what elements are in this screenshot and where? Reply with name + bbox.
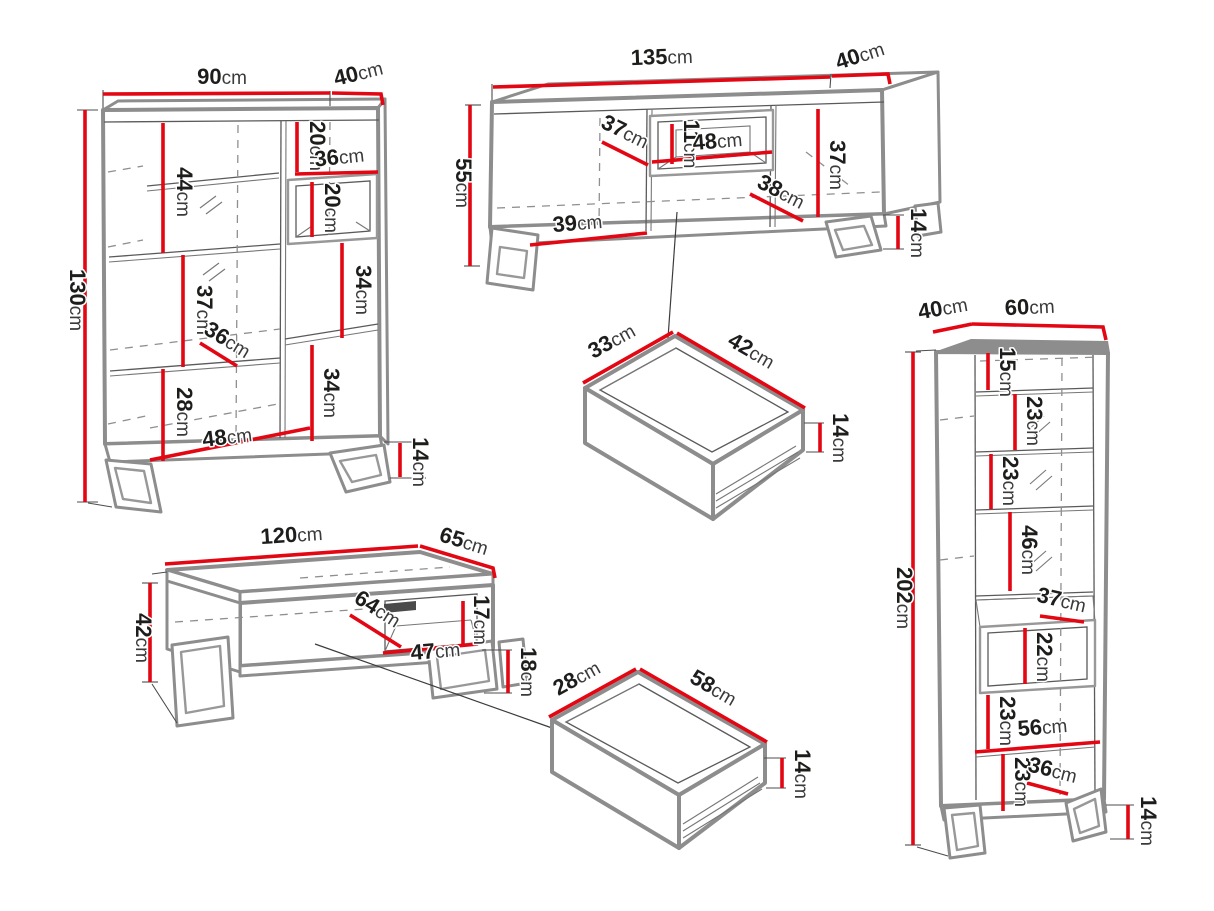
dim-coffee-table-leg-height: 18cm xyxy=(516,647,541,697)
dim-tall-cabinet-top-section: 15cm xyxy=(995,347,1020,397)
dim-highboard-height: 130cm xyxy=(65,269,90,331)
dim-tv-stand-depth: 40cm xyxy=(832,35,887,74)
dim-tv-stand-width: 135cm xyxy=(630,43,693,70)
dim-tall-cabinet-width: 60cm xyxy=(1004,293,1055,321)
dim-highboard-leg-height: 14cm xyxy=(408,437,433,487)
dim-tall-cabinet-section-4: 46cm xyxy=(1017,525,1042,575)
dim-table-drawer-height: 14cm xyxy=(790,749,815,799)
dim-tv-stand-right-inner-height: 37cm xyxy=(825,140,850,190)
dim-tv-stand-height: 55cm xyxy=(451,158,476,208)
dim-highboard-lower-section: 28cm xyxy=(172,387,197,437)
diagram-canvas: 90cm 40cm 130cm 44cm 20cm 36cm 20cm 34cm… xyxy=(0,0,1214,911)
dim-highboard-right-upper: 34cm xyxy=(351,265,376,315)
dim-coffee-table-width: 120cm xyxy=(260,520,324,549)
dim-tv-drawer-height: 14cm xyxy=(828,413,853,463)
dim-highboard-upper-shelf: 44cm xyxy=(172,167,197,217)
coffee-table-drawing xyxy=(167,552,552,728)
dim-tall-cabinet-depth: 40cm xyxy=(916,291,969,324)
tv-stand-drawing xyxy=(487,72,941,338)
dim-tall-cabinet-leg-height: 14cm xyxy=(1136,796,1161,846)
dim-tall-cabinet-section-2: 23cm xyxy=(1022,396,1047,446)
dim-tall-cabinet-section-3: 23cm xyxy=(998,456,1023,506)
dim-highboard-depth: 40cm xyxy=(331,55,385,91)
dim-coffee-table-niche-height: 17cm xyxy=(469,595,494,645)
dim-coffee-table-height: 42cm xyxy=(131,613,156,663)
dim-highboard-right-lower: 34cm xyxy=(319,368,344,418)
dim-tall-cabinet-niche-height: 22cm xyxy=(1032,632,1057,682)
furniture-dimensions-diagram: 90cm 40cm 130cm 44cm 20cm 36cm 20cm 34cm… xyxy=(0,0,1214,911)
dim-highboard-niche-height: 20cm xyxy=(320,183,345,233)
dim-highboard-width: 90cm xyxy=(197,64,247,89)
dim-tall-cabinet-height: 202cm xyxy=(892,567,917,629)
dim-tv-stand-leg-height: 14cm xyxy=(906,208,931,258)
